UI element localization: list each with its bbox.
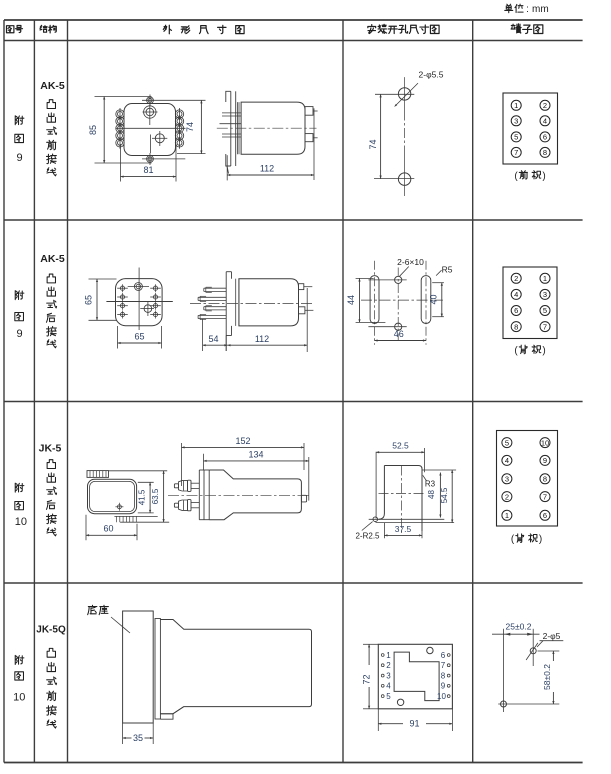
svg-text:85: 85 — [88, 125, 98, 135]
svg-text:AK-5: AK-5 — [40, 253, 65, 265]
svg-text:60: 60 — [103, 524, 113, 534]
svg-text:3: 3 — [543, 290, 547, 299]
svg-text:3: 3 — [505, 475, 509, 484]
svg-text:9: 9 — [441, 682, 446, 691]
svg-text:2: 2 — [505, 492, 509, 501]
svg-text:2-φ5.5: 2-φ5.5 — [419, 70, 444, 80]
svg-text:5: 5 — [514, 133, 518, 142]
svg-text:8: 8 — [514, 322, 518, 331]
svg-text:): ) — [542, 345, 545, 356]
svg-text:2: 2 — [543, 101, 547, 110]
svg-text:2: 2 — [514, 274, 518, 283]
svg-text:152: 152 — [235, 436, 250, 446]
svg-text:6: 6 — [543, 133, 547, 142]
svg-text:81: 81 — [143, 165, 153, 175]
svg-text:10: 10 — [13, 692, 25, 704]
svg-text:2: 2 — [386, 661, 391, 670]
svg-text:1: 1 — [505, 511, 509, 520]
svg-text:54.5: 54.5 — [440, 487, 449, 503]
svg-text:2-R2.5: 2-R2.5 — [355, 532, 380, 541]
svg-text:6: 6 — [514, 306, 518, 315]
svg-text:7: 7 — [543, 492, 547, 501]
svg-text:65: 65 — [83, 295, 93, 305]
svg-text:4: 4 — [505, 456, 509, 465]
svg-text:6: 6 — [543, 511, 547, 520]
svg-text:63.5: 63.5 — [151, 488, 160, 504]
svg-text:54: 54 — [208, 334, 218, 344]
svg-text:10: 10 — [437, 692, 446, 701]
svg-text:): ) — [539, 534, 542, 545]
svg-text:4: 4 — [386, 682, 391, 691]
svg-text:91: 91 — [409, 719, 419, 729]
svg-text:112: 112 — [260, 164, 274, 174]
svg-text:74: 74 — [368, 139, 378, 149]
svg-text:1: 1 — [386, 651, 391, 660]
svg-text:52.5: 52.5 — [392, 441, 409, 451]
svg-text:5: 5 — [505, 438, 509, 447]
svg-text:2-φ5: 2-φ5 — [543, 631, 561, 641]
svg-text:72: 72 — [361, 674, 371, 684]
svg-text:9: 9 — [543, 456, 547, 465]
svg-text:25±0.2: 25±0.2 — [506, 622, 532, 632]
svg-text:9: 9 — [17, 328, 23, 340]
svg-text:9: 9 — [17, 152, 23, 164]
svg-text:2-6×10: 2-6×10 — [397, 257, 424, 267]
svg-text:5: 5 — [543, 306, 547, 315]
svg-text:4: 4 — [543, 117, 547, 126]
svg-text:6: 6 — [441, 651, 446, 660]
svg-text:4: 4 — [514, 290, 518, 299]
svg-text:7: 7 — [543, 322, 547, 331]
svg-text:5: 5 — [386, 692, 391, 701]
svg-text:mm: mm — [532, 4, 549, 15]
svg-text:74: 74 — [185, 122, 195, 132]
svg-text:65: 65 — [134, 332, 144, 342]
svg-text:8: 8 — [441, 672, 446, 681]
svg-text:8: 8 — [543, 475, 547, 484]
svg-text:44: 44 — [346, 295, 356, 305]
svg-text:7: 7 — [441, 661, 446, 670]
svg-text:7: 7 — [514, 148, 518, 157]
svg-text:10: 10 — [541, 438, 549, 447]
svg-text:R5: R5 — [442, 265, 453, 275]
svg-text:3: 3 — [514, 117, 518, 126]
svg-text:10: 10 — [15, 516, 27, 528]
svg-text:1: 1 — [514, 101, 518, 110]
svg-text:48: 48 — [427, 490, 436, 499]
svg-text:134: 134 — [248, 449, 263, 459]
svg-text:58±0.2: 58±0.2 — [542, 664, 552, 690]
svg-text::: : — [526, 4, 529, 15]
svg-text:40: 40 — [429, 294, 439, 304]
svg-text:37.5: 37.5 — [395, 524, 412, 534]
svg-text:112: 112 — [255, 334, 269, 344]
svg-text:): ) — [542, 171, 545, 182]
svg-text:R3: R3 — [425, 480, 436, 489]
svg-text:1: 1 — [543, 274, 547, 283]
svg-text:8: 8 — [543, 148, 547, 157]
svg-text:41.5: 41.5 — [138, 489, 147, 505]
svg-text:JK-5Q: JK-5Q — [36, 625, 66, 636]
svg-text:AK-5: AK-5 — [40, 80, 65, 92]
svg-text:46: 46 — [394, 329, 404, 339]
svg-text:JK-5: JK-5 — [39, 443, 62, 455]
svg-text:3: 3 — [386, 672, 391, 681]
svg-text:35: 35 — [133, 733, 143, 743]
